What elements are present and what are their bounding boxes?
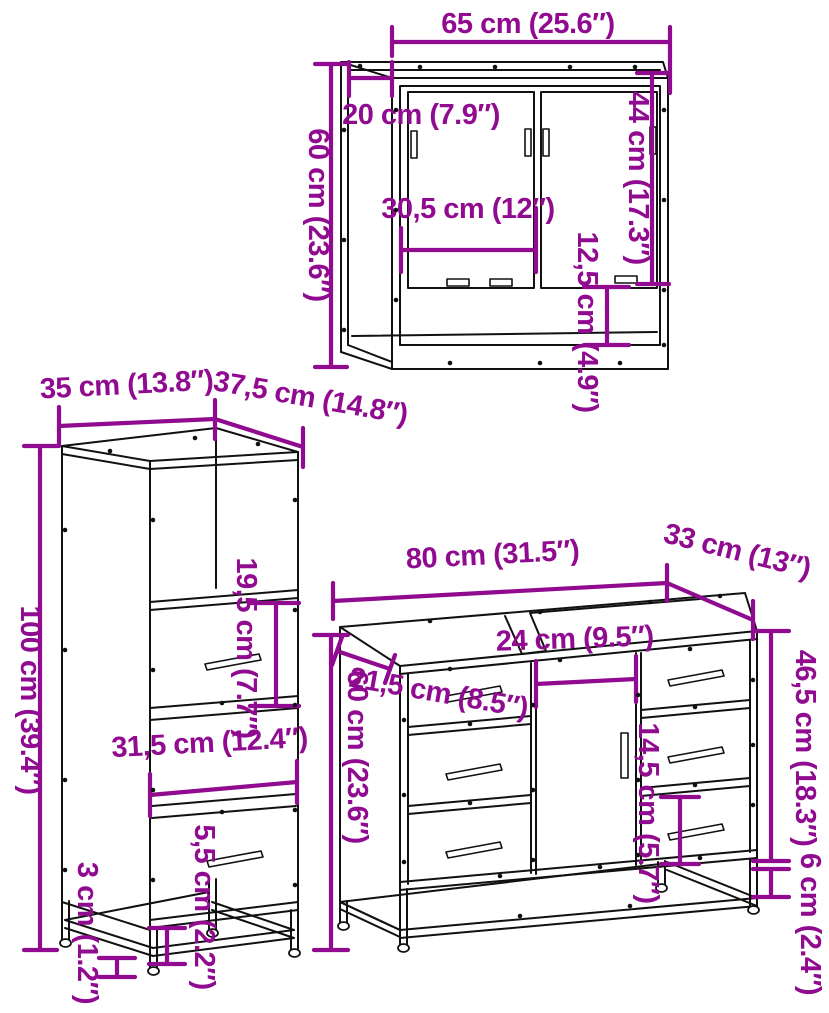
screw-dot bbox=[394, 298, 399, 303]
screw-dot bbox=[342, 328, 347, 333]
screw-dot bbox=[751, 743, 756, 748]
screw-dot bbox=[518, 914, 523, 919]
screw-dot bbox=[648, 600, 653, 605]
dim-tall-cabinet-leg-height: 5,5 cm (2.2″) bbox=[188, 824, 220, 989]
screw-dot bbox=[558, 658, 563, 663]
mirror-cabinet-drawing: 65 cm (25.6″) 20 cm (7.9″) 60 cm (23.6″)… bbox=[302, 8, 670, 413]
screw-dot bbox=[448, 667, 453, 672]
screw-dot bbox=[428, 619, 433, 624]
dim-mirror-cabinet-shelf-height: 12,5 cm (4.9″) bbox=[571, 232, 603, 413]
screw-dot bbox=[151, 878, 156, 883]
dim-mirror-cabinet-width: 65 cm (25.6″) bbox=[441, 8, 614, 40]
screw-dot bbox=[688, 647, 693, 652]
screw-dot bbox=[531, 858, 536, 863]
screw-dot bbox=[193, 436, 198, 441]
screw-dot bbox=[293, 703, 298, 708]
screw-dot bbox=[402, 793, 407, 798]
screw-dot bbox=[63, 648, 68, 653]
screw-dot bbox=[628, 904, 633, 909]
dim-sink-cabinet-width: 80 cm (31.5″) bbox=[405, 534, 580, 575]
screw-dot bbox=[636, 693, 641, 698]
screw-dot bbox=[402, 860, 407, 865]
screw-dot bbox=[693, 783, 698, 788]
screw-dot bbox=[751, 803, 756, 808]
screw-dot bbox=[342, 238, 347, 243]
screw-dot bbox=[63, 868, 68, 873]
screw-dot bbox=[636, 853, 641, 858]
screw-dot bbox=[531, 703, 536, 708]
screw-dot bbox=[598, 865, 603, 870]
screw-dot bbox=[63, 528, 68, 533]
screw-dot bbox=[568, 65, 573, 70]
screw-dot bbox=[538, 361, 543, 366]
screw-dot bbox=[662, 343, 667, 348]
screw-dot bbox=[151, 668, 156, 673]
screw-dot bbox=[751, 678, 756, 683]
screw-dot bbox=[358, 64, 363, 69]
screw-dot bbox=[633, 65, 638, 70]
screw-dot bbox=[531, 788, 536, 793]
screw-dot bbox=[220, 810, 225, 815]
screw-dot bbox=[662, 198, 667, 203]
screw-dot bbox=[468, 801, 473, 806]
screw-dot bbox=[468, 722, 473, 727]
diagram-canvas: 65 cm (25.6″) 20 cm (7.9″) 60 cm (23.6″)… bbox=[0, 0, 829, 1013]
screw-dot bbox=[693, 705, 698, 710]
sink-cabinet-drawing: 80 cm (31.5″) 33 cm (13″) 60 cm (23.6″) … bbox=[314, 518, 826, 996]
screw-dot bbox=[698, 856, 703, 861]
dim-tall-cabinet-drawer-height: 19,5 cm (7.7″) bbox=[230, 558, 262, 739]
dim-tall-cabinet-base-clearance: 3 cm (1.2″) bbox=[71, 862, 103, 1004]
dim-mirror-cabinet-door-height: 44 cm (17.3″) bbox=[622, 91, 654, 264]
dim-tall-cabinet-inner-width: 31,5 cm (12.4″) bbox=[111, 722, 309, 764]
screw-dot bbox=[342, 128, 347, 133]
screw-dot bbox=[63, 778, 68, 783]
dim-sink-cabinet-side-height: 46,5 cm (18.3″) bbox=[789, 650, 821, 847]
screw-dot bbox=[662, 108, 667, 113]
furniture-dimension-diagram: 65 cm (25.6″) 20 cm (7.9″) 60 cm (23.6″)… bbox=[0, 0, 829, 1013]
screw-dot bbox=[293, 883, 298, 888]
dim-tall-cabinet-width: 35 cm (13.8″) bbox=[39, 364, 214, 405]
dim-sink-cabinet-door-width: 24 cm (9.5″) bbox=[495, 620, 654, 657]
screw-dot bbox=[448, 361, 453, 366]
dim-sink-cabinet-depth: 33 cm (13″) bbox=[660, 518, 814, 585]
screw-dot bbox=[538, 610, 543, 615]
screw-dot bbox=[394, 208, 399, 213]
screw-dot bbox=[394, 108, 399, 113]
dim-sink-cabinet-drawer-height: 14,5 cm (5.7″) bbox=[632, 723, 664, 904]
dim-mirror-cabinet-inner-width: 30,5 cm (12″) bbox=[381, 193, 554, 225]
screw-dot bbox=[256, 442, 261, 447]
screw-dot bbox=[220, 701, 225, 706]
screw-dot bbox=[151, 518, 156, 523]
screw-dot bbox=[662, 288, 667, 293]
screw-dot bbox=[498, 874, 503, 879]
screw-dot bbox=[293, 608, 298, 613]
screw-dot bbox=[418, 65, 423, 70]
screw-dot bbox=[108, 449, 113, 454]
screw-dot bbox=[618, 361, 623, 366]
dim-mirror-cabinet-depth: 20 cm (7.9″) bbox=[342, 99, 500, 131]
screw-dot bbox=[402, 718, 407, 723]
dim-tall-cabinet-height: 100 cm (39.4″) bbox=[14, 605, 46, 794]
dim-tall-cabinet-depth: 37,5 cm (14.8″) bbox=[211, 365, 410, 431]
screw-dot bbox=[293, 498, 298, 503]
screw-dot bbox=[151, 788, 156, 793]
dim-mirror-cabinet-height: 60 cm (23.6″) bbox=[302, 128, 334, 301]
screw-dot bbox=[718, 594, 723, 599]
screw-dot bbox=[293, 808, 298, 813]
screw-dot bbox=[493, 65, 498, 70]
dim-sink-cabinet-leg-height: 6 cm (2.4″) bbox=[794, 853, 826, 995]
screw-dot bbox=[636, 778, 641, 783]
